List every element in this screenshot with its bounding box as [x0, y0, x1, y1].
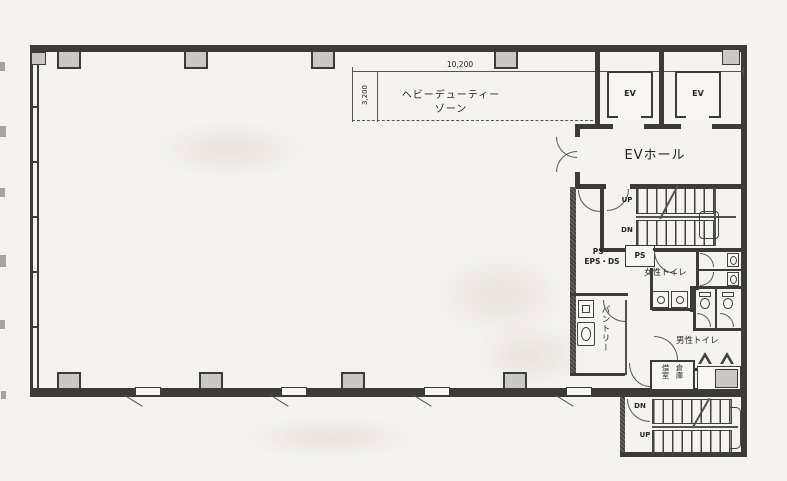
- stall-divider: [696, 269, 741, 271]
- toilet-bowl: [723, 298, 733, 309]
- column: [57, 372, 81, 388]
- door-arc: [578, 190, 600, 212]
- window-mullion: [30, 161, 39, 163]
- stair-handrail: [699, 211, 719, 239]
- stall-divider: [715, 289, 717, 328]
- elevator-door-gap: [686, 116, 709, 119]
- floor-plan: 10,200 3,200 ヘビーデューティー ゾーン EV EV EVホール U…: [0, 0, 787, 481]
- toilet: [727, 272, 739, 286]
- stair-up-label: UP: [634, 431, 656, 439]
- urinal-icon-inner: [701, 357, 709, 364]
- wall-left-outer: [30, 52, 33, 388]
- dimension-depth-label: 3,200: [361, 71, 369, 119]
- door-jamb: [644, 124, 649, 129]
- pantry-bottom-wall: [570, 373, 625, 376]
- ps-shaft: PS: [625, 245, 655, 267]
- corridor-wall: [650, 268, 653, 310]
- storage-label-col1: 借室: [660, 364, 671, 387]
- column: [311, 52, 335, 69]
- elevator-label: EV: [677, 89, 719, 98]
- toilet-tank: [722, 292, 734, 297]
- stair-up-label: UP: [616, 196, 638, 204]
- scan-mark: [0, 62, 5, 71]
- toilet-bowl: [700, 298, 710, 309]
- service-counter: [697, 366, 741, 390]
- elevator-label: EV: [609, 89, 651, 98]
- stair-left-wall: [600, 189, 604, 252]
- stair-dn-label: DN: [629, 402, 651, 410]
- window-mullion: [30, 326, 39, 328]
- corner-column: [31, 52, 46, 65]
- storage-label-col2: 倉庫: [674, 364, 685, 387]
- window-mark: [566, 387, 592, 396]
- zone-left-line: [352, 71, 353, 122]
- corridor-wall: [625, 300, 627, 375]
- window-mullion: [30, 216, 39, 218]
- equipment-block: [715, 369, 738, 388]
- wall-segment: [575, 127, 580, 137]
- window-mark: [424, 387, 450, 396]
- toilet-tank: [699, 292, 711, 297]
- stair-dn-label: DN: [616, 226, 638, 234]
- scan-mark: [0, 126, 6, 137]
- pantry-top-wall: [570, 293, 628, 296]
- ev-door-opening: [680, 124, 713, 129]
- stair-flight-up: [652, 430, 732, 454]
- urinal-icon-inner: [723, 357, 731, 364]
- door-arc: [629, 363, 650, 387]
- ps-label: PS: [626, 251, 654, 260]
- column: [722, 49, 740, 65]
- ev-door-opening: [612, 124, 645, 129]
- pantry-sink: [577, 322, 595, 346]
- column: [199, 372, 223, 388]
- wall-top: [30, 45, 747, 52]
- ev-shaft-divider-wall: [659, 52, 664, 127]
- heavy-duty-zone-label-line1: ヘビーデューティー: [386, 86, 516, 101]
- ev-shaft-left-wall: [595, 52, 600, 127]
- storage-room: 借室 倉庫: [650, 360, 695, 391]
- door-arc: [556, 151, 577, 172]
- washbasin: [671, 291, 688, 308]
- dimension-width-label: 10,200: [420, 60, 500, 69]
- dimension-tick: [743, 67, 744, 75]
- stall-door-arc: [697, 313, 711, 327]
- scan-mark: [0, 188, 5, 197]
- column: [341, 372, 365, 388]
- stall-door-arc: [720, 313, 734, 327]
- toilet: [727, 253, 739, 267]
- heavy-duty-zone-label-line2: ゾーン: [386, 100, 516, 115]
- ev-hall-top-wall: [575, 124, 747, 129]
- annex-left-wall: [620, 397, 625, 457]
- door-jamb: [712, 124, 717, 129]
- column: [184, 52, 208, 69]
- wall-segment: [652, 308, 690, 311]
- stair-landing-line: [636, 216, 736, 218]
- stair-handrail: [730, 407, 741, 449]
- window-mark: [281, 387, 307, 396]
- door-jamb: [676, 124, 681, 129]
- door-jamb: [608, 124, 613, 129]
- window-mullion: [30, 106, 39, 108]
- window-mullion: [30, 271, 39, 273]
- column: [503, 372, 527, 388]
- door-jamb: [630, 184, 634, 189]
- bleedthrough-smudge: [150, 120, 310, 180]
- stall-door-arc: [700, 272, 714, 286]
- stall-wall: [693, 328, 741, 331]
- scan-mark: [1, 391, 6, 399]
- washbasin: [652, 291, 669, 308]
- zone-boundary-dashed: [352, 120, 598, 123]
- window-mark: [135, 387, 161, 396]
- storage-label: 借室 倉庫: [652, 364, 693, 387]
- zone-inner-line: [377, 71, 378, 122]
- elevator-car-1: EV: [607, 71, 653, 118]
- scan-mark: [0, 255, 6, 267]
- pantry-counter: [578, 300, 594, 318]
- womens-top-wall: [676, 248, 741, 251]
- core-left-wall: [570, 187, 576, 375]
- wall-left-inner: [37, 52, 39, 388]
- bleedthrough-smudge: [240, 415, 420, 460]
- elevator-car-2: EV: [675, 71, 721, 118]
- stair-flight-down: [652, 399, 732, 424]
- stall-door-arc: [700, 253, 714, 267]
- column: [57, 52, 81, 69]
- stall-wall: [693, 289, 696, 330]
- scan-mark: [0, 320, 5, 329]
- ev-hall-label: EVホール: [600, 144, 710, 163]
- ps-eps-ds-label-line2: EPS・DS: [573, 256, 631, 267]
- stair-landing-line: [652, 426, 738, 428]
- mens-toilet-label: 男性トイレ: [676, 334, 730, 346]
- door-arc: [654, 336, 678, 360]
- elevator-door-gap: [618, 116, 641, 119]
